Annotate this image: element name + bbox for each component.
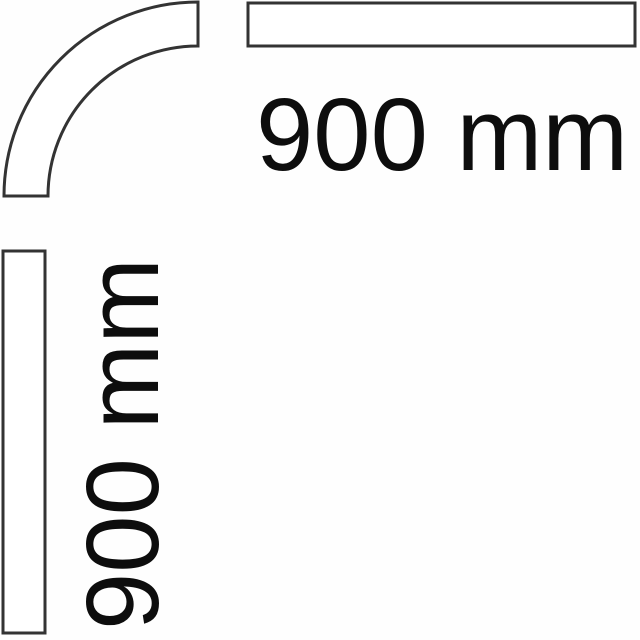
rail-drawing: 900 mm 900 mm [0, 0, 640, 640]
dimension-diagram: 900 mm 900 mm [0, 0, 640, 640]
horizontal-rail-shape [248, 3, 635, 46]
vertical-dimension-label: 900 mm [65, 258, 180, 630]
corner-bend-rail-shape [4, 2, 198, 196]
vertical-rail-shape [3, 251, 45, 633]
horizontal-dimension-label: 900 mm [256, 77, 628, 192]
